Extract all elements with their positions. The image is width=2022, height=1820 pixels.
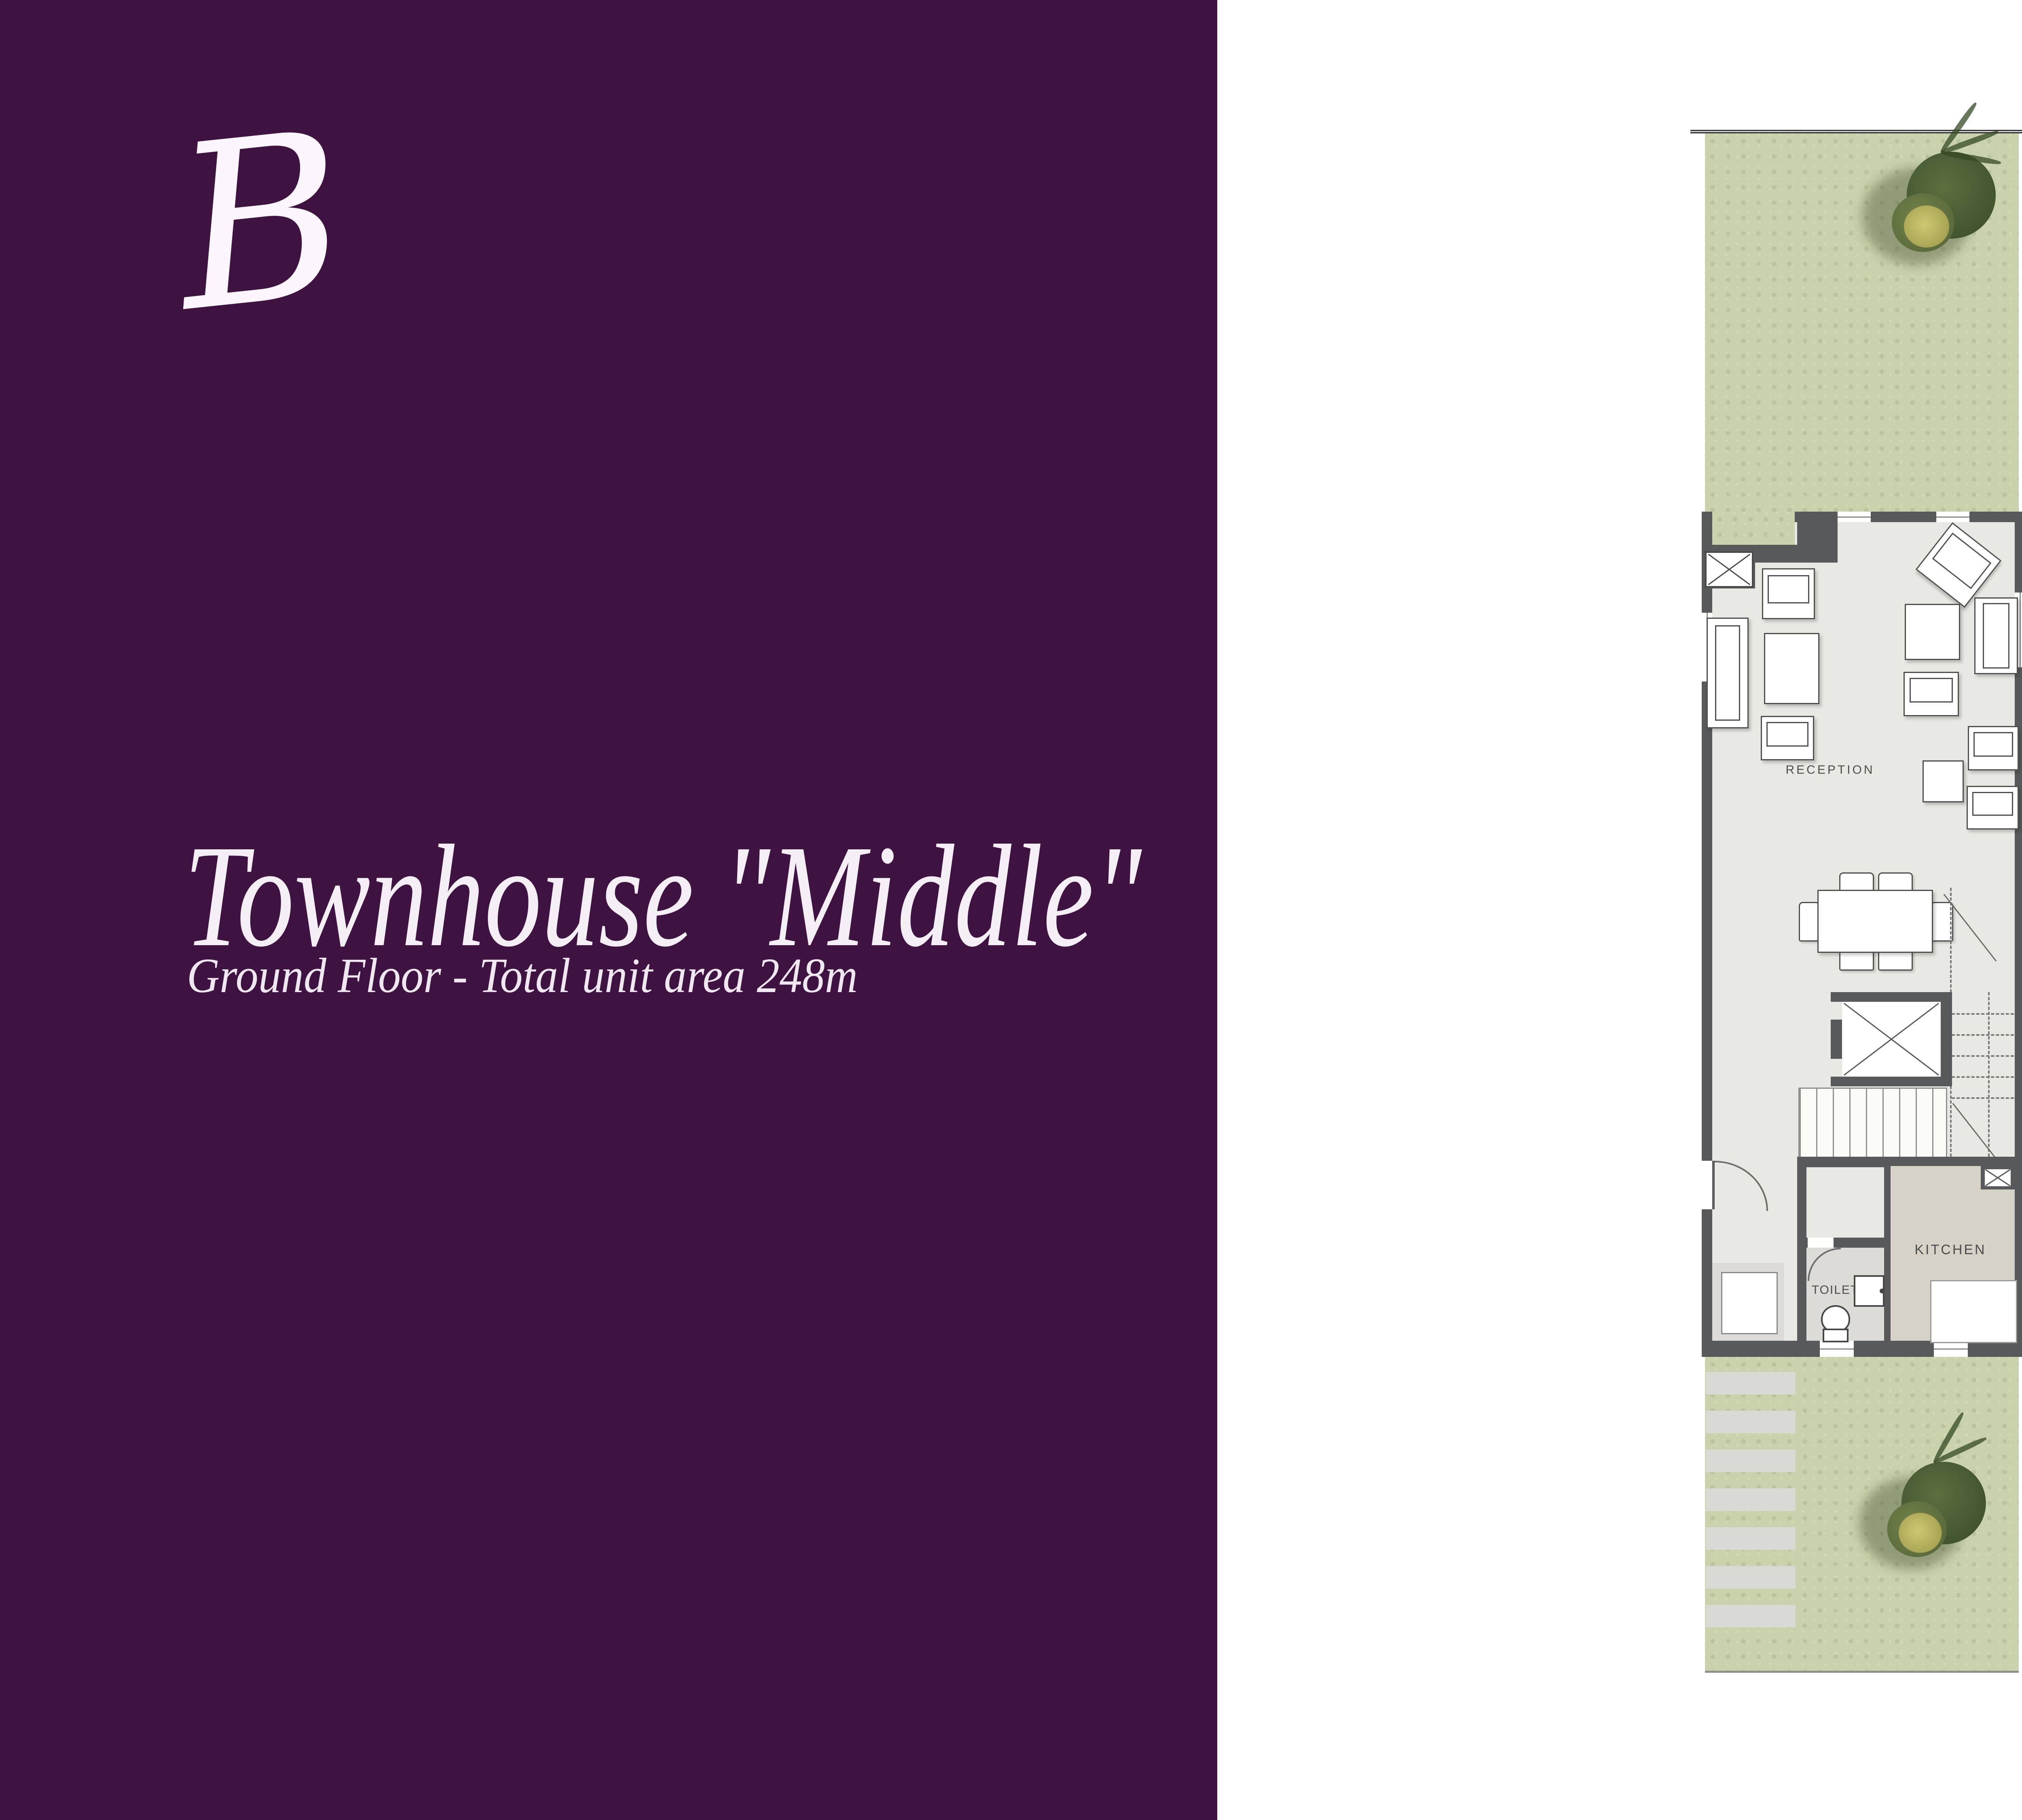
house-plan: RECEPTION (1702, 512, 2022, 1357)
void-dashed-line (1952, 1097, 2014, 1099)
tree (1880, 146, 2002, 267)
armchair (1968, 726, 2019, 770)
entry-porch (1712, 1263, 1784, 1341)
sofa (1974, 597, 2018, 674)
page-subtitle: Ground Floor - Total unit area 248m (187, 951, 858, 1001)
armchair (1967, 786, 2019, 830)
kitchen-counter (1930, 1280, 2017, 1343)
void-dashed-line (1952, 1034, 2014, 1036)
garden-notch (1712, 512, 1795, 545)
armchair (1904, 672, 1959, 716)
brochure-page: B Townhouse "Middle" Ground Floor - Tota… (0, 0, 2022, 1820)
elevator-car (1842, 1002, 1941, 1077)
dining-chair (1799, 902, 1820, 942)
toilet-wc-tank (1823, 1329, 1849, 1342)
toilet-sink (1854, 1275, 1885, 1307)
side-table (1905, 604, 1960, 660)
brand-logo: B (167, 101, 356, 344)
entry-opening (1702, 1161, 1712, 1209)
window (1934, 1341, 1968, 1357)
elevator-door (1831, 1002, 1842, 1020)
wall (1702, 1341, 2022, 1357)
side-table (1923, 760, 1964, 802)
void-dashed-line (1952, 1076, 2014, 1078)
wall (1797, 1157, 1806, 1341)
void-dashed-line (1952, 1013, 2014, 1015)
dining-table (1817, 890, 1933, 953)
armchair (1762, 568, 1815, 619)
reception-label: RECEPTION (1768, 763, 1892, 777)
staircase (1798, 1088, 1947, 1159)
window (1936, 512, 1969, 522)
coffee-table (1764, 633, 1819, 704)
kitchen-label: KITCHEN (1892, 1242, 2009, 1258)
plot-boundary-bottom (1705, 1671, 2019, 1673)
ac-unit-icon (1705, 551, 1753, 588)
door-opening (1808, 1238, 1834, 1248)
void-dashed-line (1988, 992, 1990, 1157)
void-dashed-line (1952, 1055, 2014, 1057)
garden-steps (1706, 1372, 1796, 1635)
plot-boundary-top (1690, 130, 2022, 133)
duct-shaft (1981, 1166, 2015, 1189)
sofa (1707, 618, 1749, 728)
page-title: Townhouse "Middle" (184, 823, 1142, 969)
wall (1884, 1157, 1891, 1341)
brand-panel: B Townhouse "Middle" Ground Floor - Tota… (0, 0, 1217, 1820)
elevator-door (1831, 1059, 1842, 1077)
armchair (1761, 716, 1814, 760)
window (1838, 512, 1871, 522)
tree (1876, 1456, 1992, 1571)
wall (1797, 512, 1838, 563)
window (1820, 1341, 1854, 1357)
elevator-shaft (1831, 992, 1952, 1086)
